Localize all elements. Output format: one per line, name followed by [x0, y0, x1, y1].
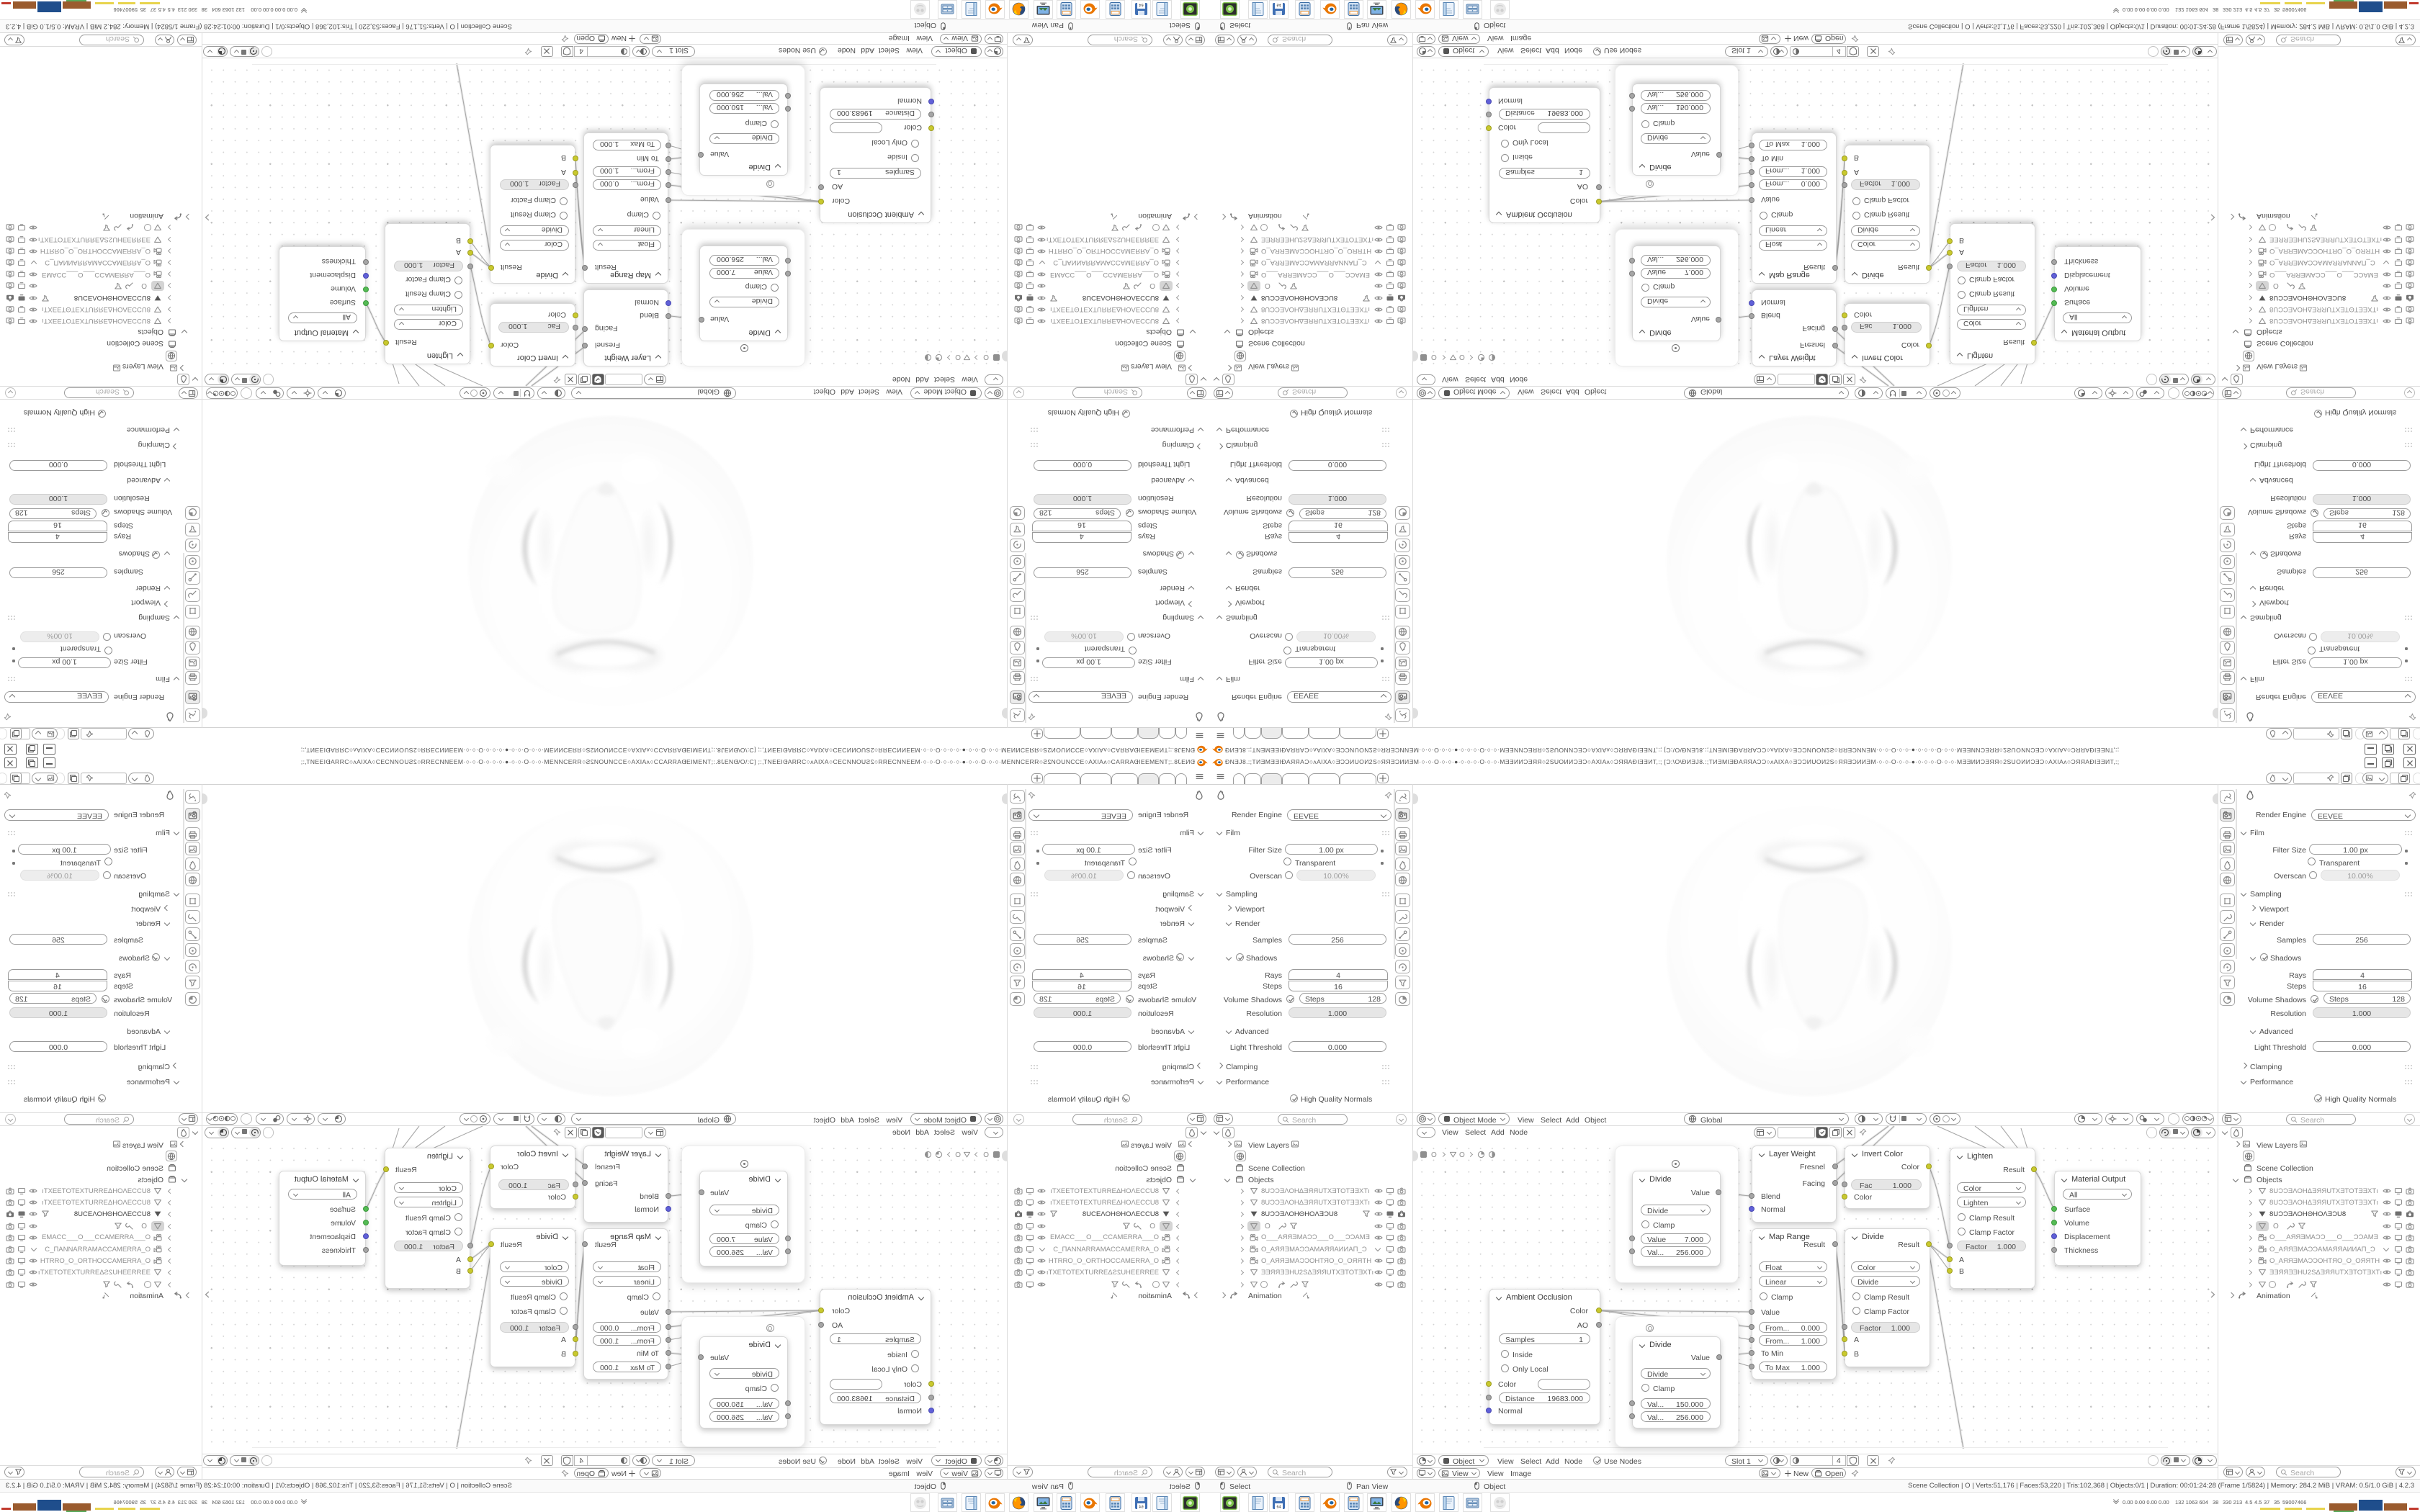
- svg-text:64: 64: [1139, 1506, 1143, 1510]
- svg-text:64: 64: [1139, 3, 1143, 7]
- svg-text:64: 64: [1276, 3, 1281, 7]
- svg-text:64: 64: [1276, 1506, 1281, 1510]
